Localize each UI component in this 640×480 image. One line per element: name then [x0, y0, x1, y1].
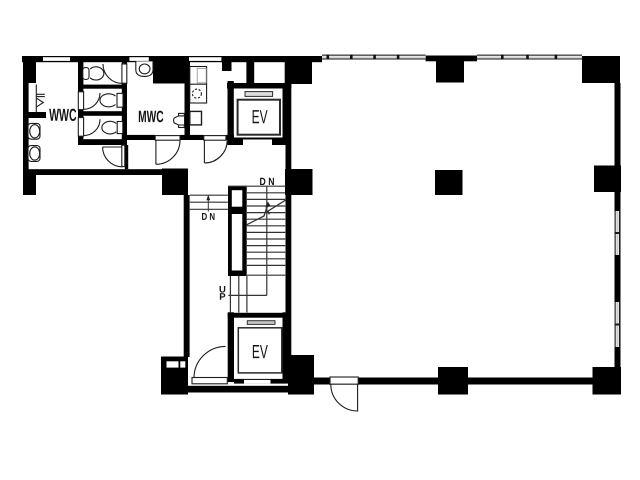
svg-text:MWC: MWC: [138, 108, 164, 126]
svg-text:EV: EV: [252, 342, 268, 363]
svg-text:WWC: WWC: [49, 105, 77, 125]
svg-text:EV: EV: [252, 107, 268, 128]
svg-text:D N: D N: [202, 212, 216, 223]
svg-text:P: P: [219, 292, 226, 303]
svg-text:D N: D N: [260, 176, 275, 188]
